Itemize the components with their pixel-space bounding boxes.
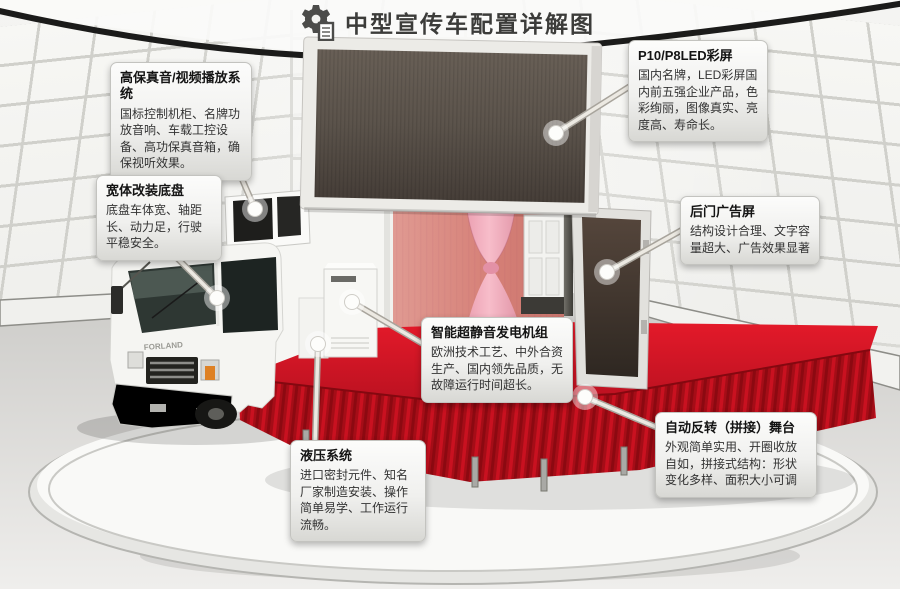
callout-body: 国标控制机柜、名牌功放音响、车载工控设备、高功保真音箱，确保视听效果。 (120, 106, 242, 172)
callout-audio-system: 高保真音/视频播放系统 国标控制机柜、名牌功放音响、车载工控设备、高功保真音箱，… (110, 62, 252, 181)
callout-title: 宽体改装底盘 (106, 183, 212, 199)
callout-body: 外观简单实用、开圈收放自如，拼接式结构：形状变化多样、面积大小可调 (665, 439, 807, 489)
callout-body: 进口密封元件、知名厂家制造安装、操作简单易学、工作运行流畅。 (300, 467, 416, 533)
callout-led-screen: P10/P8LED彩屏 国内名牌，LED彩屏国内前五强企业产品，色彩绚丽，图像真… (628, 40, 768, 142)
page-title: 中型宣传车配置详解图 (300, 3, 595, 41)
orange-marker (205, 366, 215, 380)
callout-body: 国内名牌，LED彩屏国内前五强企业产品，色彩绚丽，图像真实、亮度高、寿命长。 (638, 67, 758, 133)
callout-chassis: 宽体改装底盘 底盘车体宽、轴距长、动力足，行驶平稳安全。 (96, 175, 222, 261)
callout-title: 高保真音/视频播放系统 (120, 70, 242, 103)
callout-body: 底盘车体宽、轴距长、动力足，行驶平稳安全。 (106, 202, 212, 252)
truck: FORLAND (110, 243, 283, 429)
callout-title: 智能超静音发电机组 (431, 325, 563, 341)
infographic-page: FORLAND (0, 0, 900, 589)
callout-body: 欧洲技术工艺、中外合资生产、国内领先品质，无故障运行时间超长。 (431, 344, 563, 394)
page-title-text: 中型宣传车配置详解图 (345, 5, 595, 39)
callout-rear-door-screen: 后门广告屏 结构设计合理、文字容量超大、广告效果显著 (680, 196, 820, 265)
side-mirror (111, 286, 123, 314)
callout-title: 自动反转（拼接）舞台 (665, 420, 807, 436)
white-panel-door (524, 215, 564, 301)
callout-title: 后门广告屏 (690, 204, 810, 220)
gear-document-icon (300, 3, 336, 41)
backdrop-pole (564, 203, 573, 316)
audio-cabinet (225, 190, 310, 251)
rear-door-ad-screen (572, 207, 651, 389)
callout-title: 液压系统 (300, 448, 416, 464)
headlight-left (128, 352, 143, 368)
callout-generator: 智能超静音发电机组 欧洲技术工艺、中外合资生产、国内领先品质，无故障运行时间超长… (421, 317, 573, 403)
callout-title: P10/P8LED彩屏 (638, 48, 758, 64)
callout-folding-stage: 自动反转（拼接）舞台 外观简单实用、开圈收放自如，拼接式结构：形状变化多样、面积… (655, 412, 817, 498)
callout-hydraulic-system: 液压系统 进口密封元件、知名厂家制造安装、操作简单易学、工作运行流畅。 (290, 440, 426, 542)
callout-body: 结构设计合理、文字容量超大、广告效果显著 (690, 223, 810, 256)
